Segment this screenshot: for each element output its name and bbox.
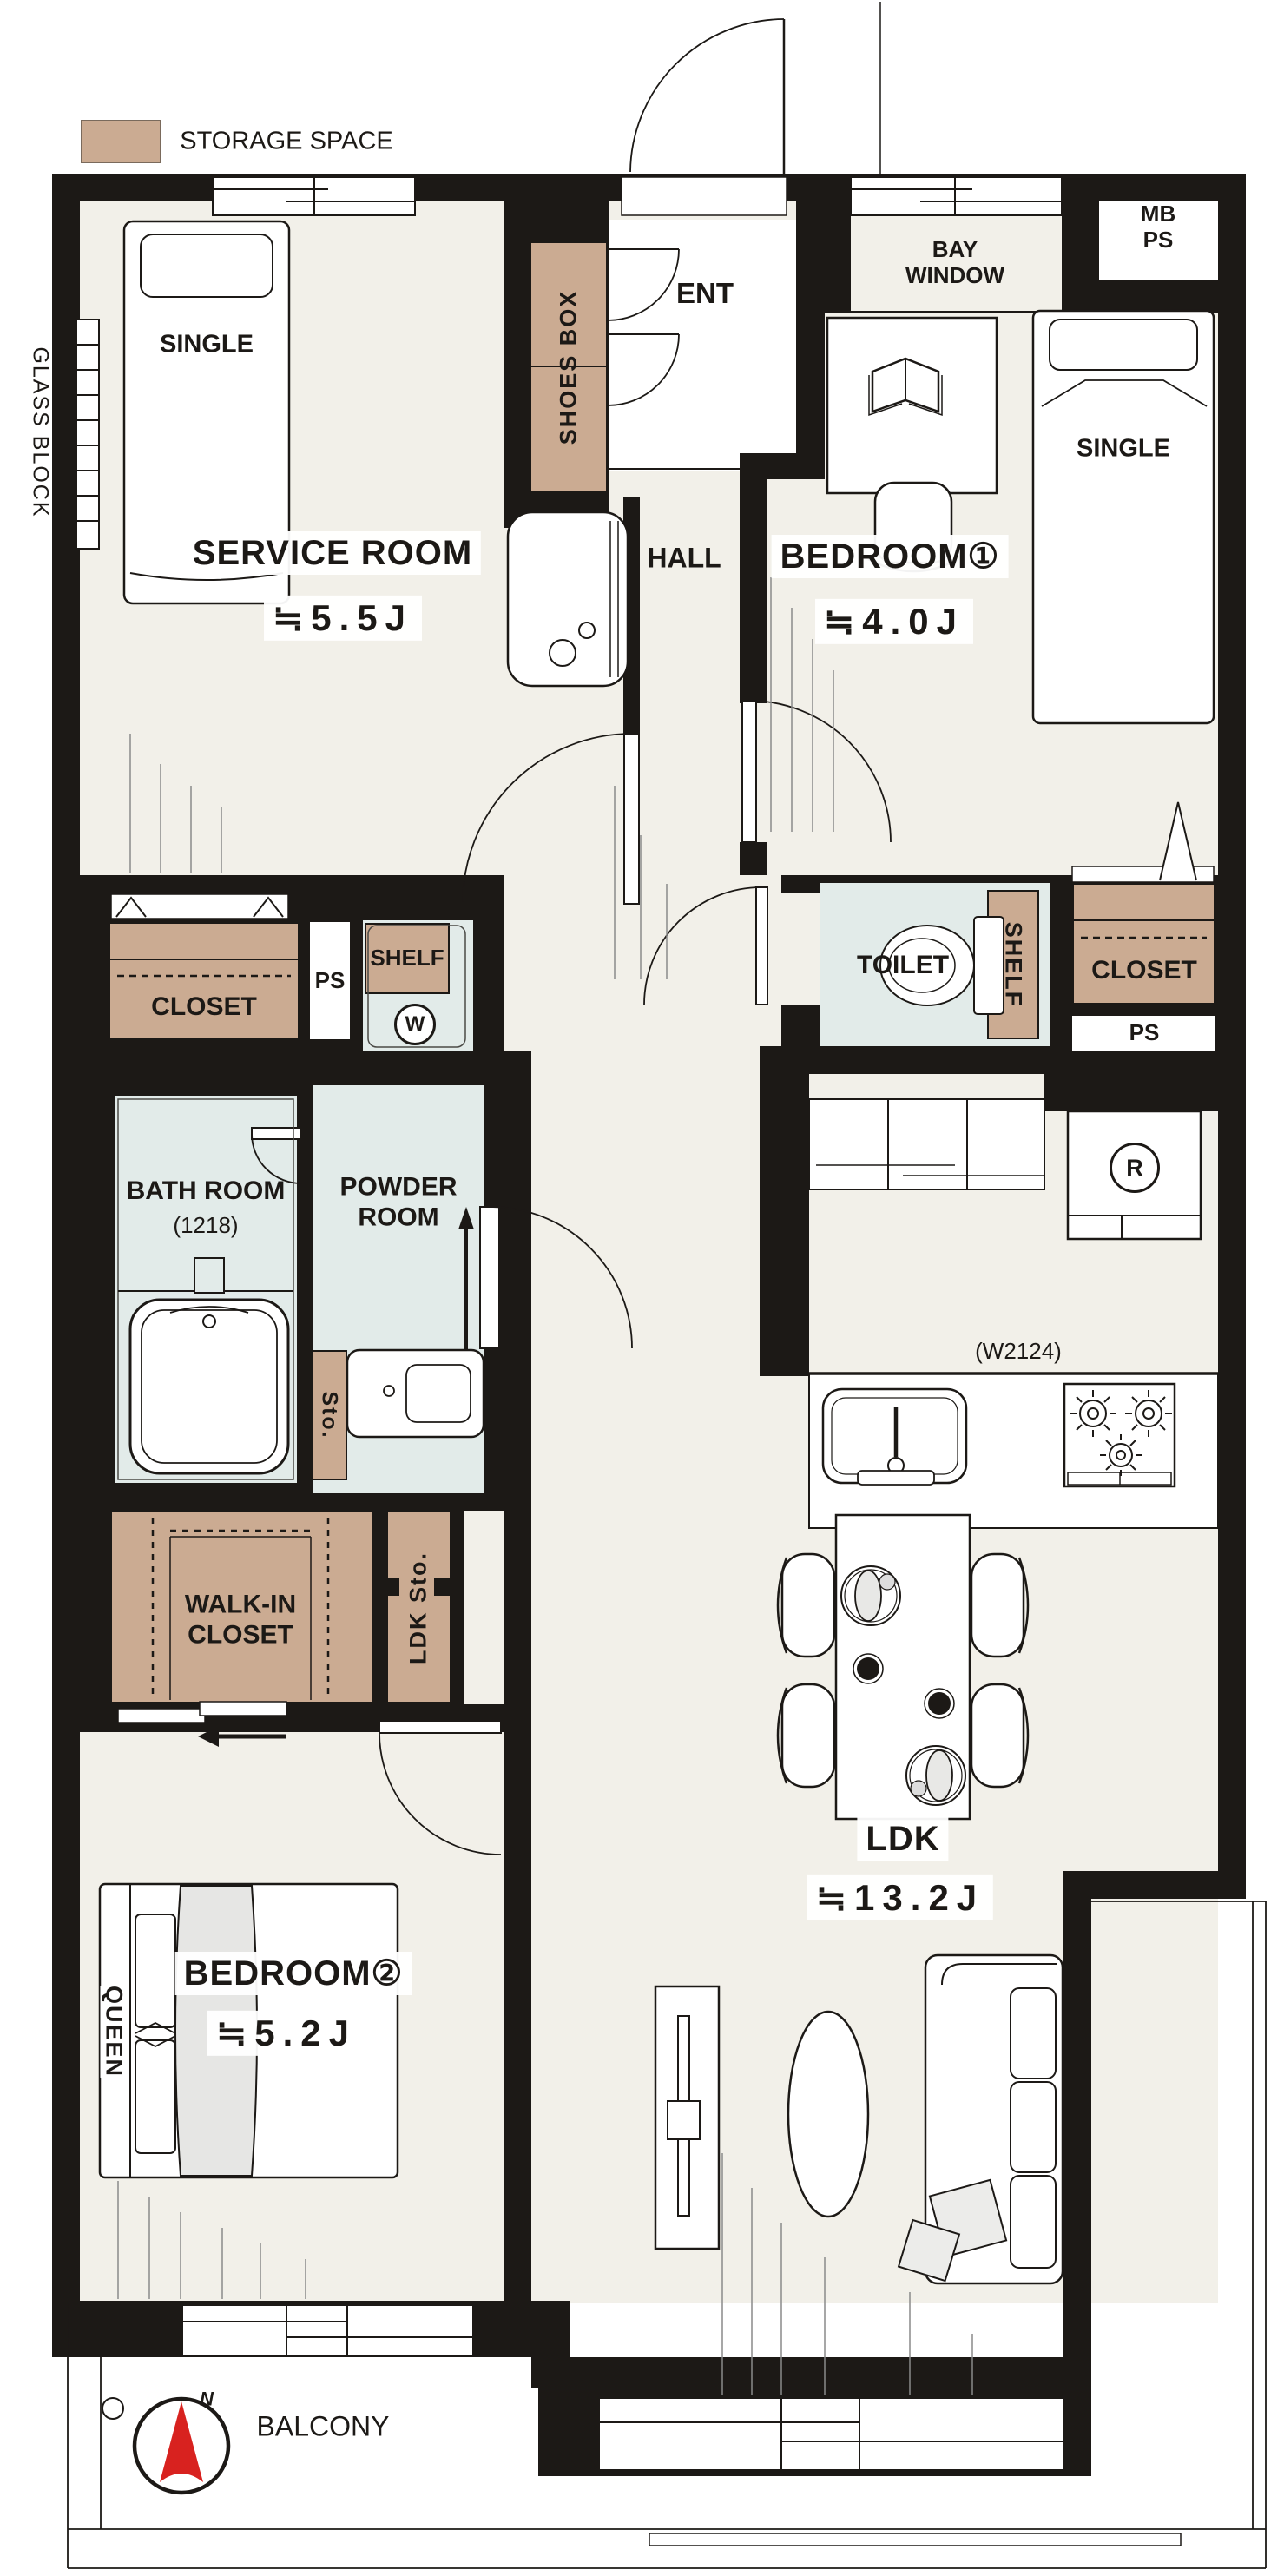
- closet-right: [1072, 883, 1215, 1005]
- wall-bottom-ldk: [538, 2357, 1091, 2476]
- wall-serviceroom-right: [623, 497, 640, 735]
- wall-bedroom2-right: [504, 1732, 531, 2305]
- wall-bedroom1-stub: [740, 842, 767, 875]
- ldk-size: ≒13.2J: [807, 1875, 993, 1920]
- shelf-toilet-label: SHELF: [999, 922, 1026, 1008]
- storage-legend-swatch: [81, 120, 161, 163]
- glass-block-label: GLASS BLOCK: [28, 346, 53, 517]
- kitchen-width-label: (W2124): [975, 1339, 1062, 1365]
- closet-right-label: CLOSET: [1091, 956, 1197, 986]
- compass: [135, 2399, 228, 2493]
- single-service-label: SINGLE: [160, 330, 254, 359]
- shoes-box-label: SHOES BOX: [555, 290, 582, 445]
- compass-north-label: N: [200, 2388, 214, 2409]
- service-room-name: SERVICE ROOM: [184, 531, 481, 575]
- bedroom1-size: ≒4.0J: [815, 599, 973, 644]
- shelf-top-label: SHELF: [370, 945, 444, 972]
- bay-window-label: BAY WINDOW: [886, 237, 1024, 289]
- bathroom-floor2: [115, 1096, 297, 1483]
- ps-left-label: PS: [315, 968, 346, 994]
- wall-above-fridge: [1044, 1046, 1218, 1111]
- closet-left-label: CLOSET: [151, 992, 257, 1023]
- wall-bottom-bedroom2: [52, 2301, 558, 2357]
- wall-serviceroom-bottom: [80, 875, 504, 903]
- mb-ps-label: MB PS: [1129, 201, 1187, 254]
- bathroom-name: BATH ROOM: [127, 1176, 286, 1207]
- bathroom-size: (1218): [173, 1213, 238, 1239]
- wall-below-mbps: [1099, 280, 1218, 313]
- service-room-size: ≒5.5J: [264, 596, 422, 641]
- storage-legend-label: STORAGE SPACE: [180, 127, 393, 155]
- bedroom1-name: BEDROOM①: [772, 535, 1009, 578]
- wall-bay-right: [1062, 201, 1099, 313]
- ldk-sto-label: LDK Sto.: [405, 1552, 431, 1664]
- wall-kitchen: [760, 1046, 809, 1376]
- wall-ent-right: [796, 201, 825, 469]
- ldk-sto-notch-left: [380, 1578, 399, 1596]
- fridge-symbol: R: [1110, 1143, 1160, 1193]
- wall-right: [1218, 174, 1246, 1899]
- bedroom2-name: BEDROOM②: [175, 1952, 412, 1995]
- wall-bedroom1-left: [740, 469, 767, 703]
- hall-label: HALL: [647, 543, 721, 575]
- single-bedroom1-label: SINGLE: [1077, 434, 1170, 463]
- ps-right-label: PS: [1129, 1020, 1160, 1046]
- powder-room-label: POWDER ROOM: [325, 1173, 472, 1233]
- ldk-strip: [464, 1511, 504, 1704]
- toilet-label: TOILET: [857, 951, 949, 981]
- wall-top: [52, 174, 1246, 201]
- ldk-sto-notch-right: [434, 1578, 453, 1596]
- sto-label: Sto.: [317, 1391, 342, 1439]
- entrance-floor: [609, 220, 796, 471]
- washer-symbol: W: [394, 1004, 436, 1045]
- ent-label: ENT: [676, 277, 734, 310]
- ldk-name: LDK: [857, 1817, 948, 1861]
- wall-left: [52, 174, 80, 2357]
- queen-label: QUEEN: [100, 1986, 127, 2078]
- bedroom2-size: ≒5.2J: [207, 2011, 365, 2056]
- wall-bay-left: [825, 201, 851, 313]
- floor-plan: STORAGE SPACE GLASS BLOCK: [0, 0, 1284, 2576]
- balcony-label: BALCONY: [257, 2411, 390, 2443]
- walk-in-closet-label: WALK-IN CLOSET: [141, 1591, 340, 1650]
